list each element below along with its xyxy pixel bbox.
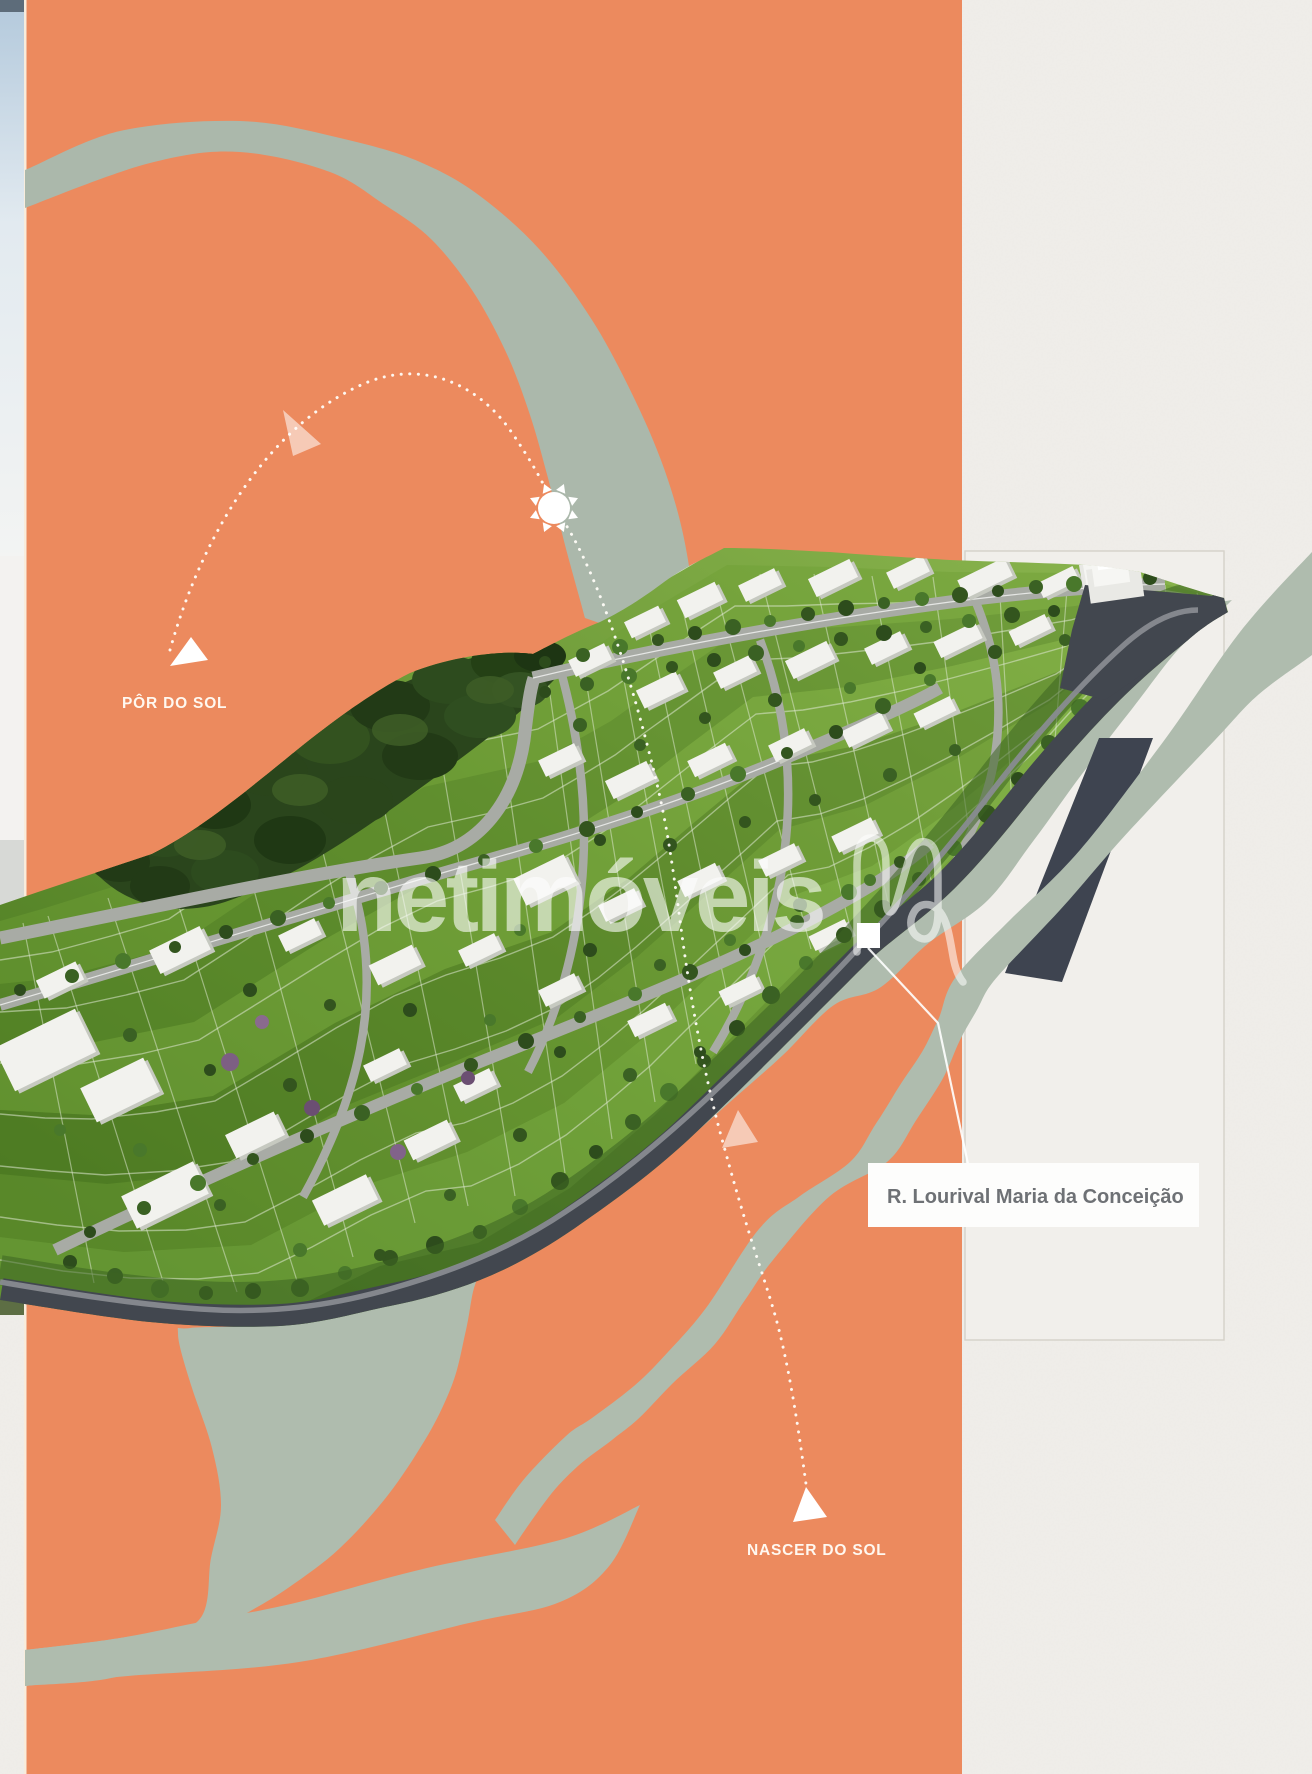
svg-text:netimóveis: netimóveis [336,841,823,953]
svg-text:PÔR DO SOL: PÔR DO SOL [122,694,227,712]
svg-text:NASCER DO SOL: NASCER DO SOL [747,1542,887,1559]
svg-text:R. Lourival Maria da Conceição: R. Lourival Maria da Conceição [887,1186,1184,1208]
